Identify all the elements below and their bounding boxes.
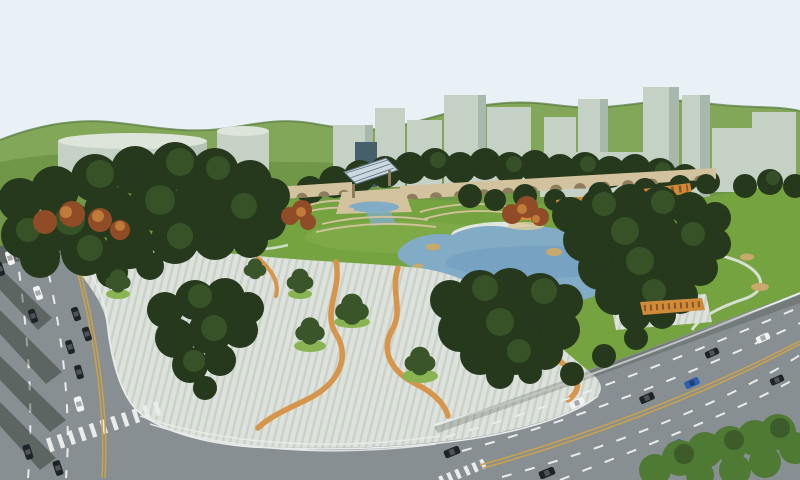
park-rendering-canvas bbox=[0, 0, 800, 480]
park-rendering bbox=[0, 0, 800, 480]
gateway-pool bbox=[349, 202, 399, 213]
